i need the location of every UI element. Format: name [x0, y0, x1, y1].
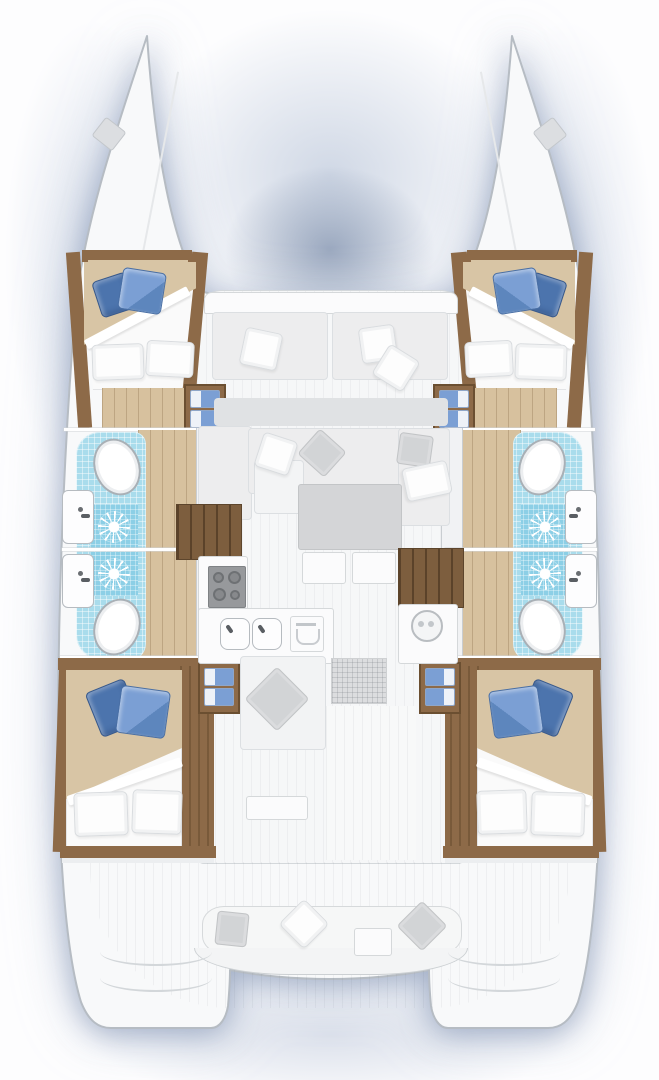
salon-table — [298, 484, 402, 550]
burner — [230, 590, 240, 600]
stairs-icon — [176, 504, 242, 560]
washbasin-icon — [565, 554, 597, 608]
oven-icon — [290, 616, 324, 652]
bathroom-divider-wall — [445, 548, 597, 551]
faucet-icon — [569, 578, 578, 582]
pillow-icon — [214, 910, 249, 947]
salon-stool — [302, 552, 346, 584]
burner — [213, 572, 224, 583]
bow-hatch-icon — [532, 117, 567, 152]
stove-burners-icon — [208, 566, 246, 608]
cockpit-door-step — [246, 796, 308, 820]
double-sink-icon — [220, 618, 250, 650]
foredeck-bench-back — [204, 292, 458, 314]
burner — [213, 588, 226, 601]
companionway-walkway — [326, 706, 416, 860]
burner — [228, 571, 241, 584]
aft-cabin-sill — [445, 858, 597, 863]
floor-mat — [331, 658, 387, 704]
faucet-icon — [576, 571, 581, 576]
aft-cabin-foot-trim — [443, 846, 599, 858]
pillow-icon — [476, 789, 528, 835]
faucet-icon — [225, 624, 233, 634]
utility-counter — [398, 604, 458, 664]
pillow-icon — [514, 343, 567, 381]
shower-icon — [529, 558, 561, 590]
washer-icon — [411, 610, 443, 642]
step-cushion — [425, 668, 455, 686]
pillow-icon — [492, 267, 542, 315]
heads-floor — [461, 430, 521, 660]
faucet-icon — [257, 624, 265, 634]
oven-door-line — [296, 629, 320, 645]
stairs-icon — [398, 548, 464, 608]
faucet-icon — [569, 514, 578, 518]
cockpit-table — [354, 928, 392, 956]
transom-step-line — [100, 964, 212, 992]
faucet-icon — [576, 507, 581, 512]
pillow-icon — [464, 340, 514, 378]
double-sink-icon — [252, 618, 282, 650]
pillow-icon — [488, 685, 544, 739]
shower-icon — [529, 511, 561, 543]
washbasin-icon — [565, 490, 597, 544]
salon-stool — [352, 552, 396, 584]
shower-tray — [521, 552, 569, 596]
transom-step-line — [448, 938, 560, 966]
bow-deck-line — [480, 72, 520, 269]
pillow-icon — [238, 326, 283, 371]
salon-sofa-back — [214, 398, 448, 426]
washer-dial — [418, 621, 424, 627]
transom-step-line — [100, 938, 212, 966]
step-cushion — [425, 688, 455, 706]
aft-companionway-steps — [419, 662, 461, 714]
transom-step-line — [448, 964, 560, 992]
pillow-icon — [530, 791, 586, 837]
shower-tray — [521, 504, 569, 550]
fwd-cabin-floor — [473, 388, 557, 430]
washer-dial — [428, 621, 434, 627]
floor-plan-scene — [0, 0, 659, 1080]
oven-door-line — [296, 623, 316, 626]
